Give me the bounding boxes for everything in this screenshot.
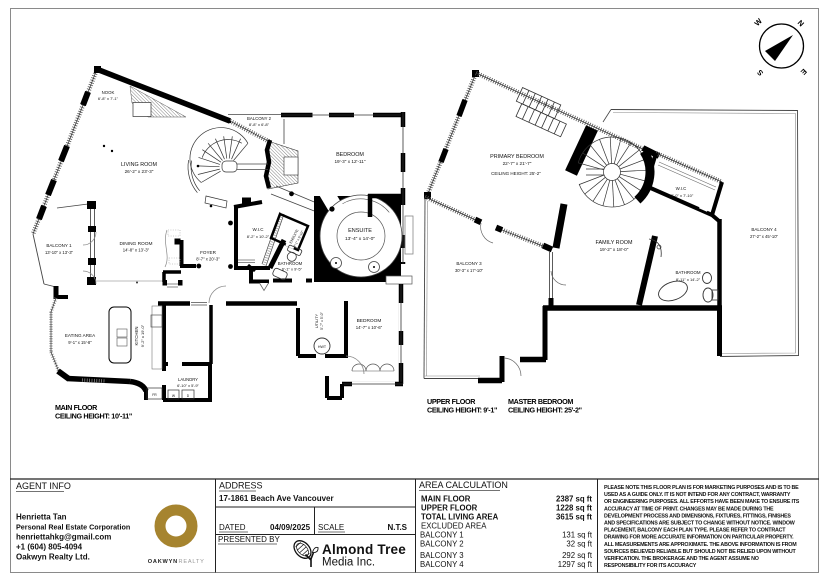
svg-text:3615 sq ft: 3615 sq ft [556, 513, 592, 522]
svg-text:2387 sq ft: 2387 sq ft [556, 495, 592, 504]
svg-text:BALCONY 3: BALCONY 3 [456, 261, 482, 266]
svg-text:UPPER FLOOR: UPPER FLOOR [421, 504, 478, 513]
svg-text:26'-2" x 23'-3": 26'-2" x 23'-3" [125, 169, 154, 174]
svg-text:VERIFICATION. THE BROKERAGE AN: VERIFICATION. THE BROKERAGE AND THE AGEN… [604, 556, 759, 562]
svg-text:EXCLUDED AREA: EXCLUDED AREA [421, 522, 487, 531]
svg-text:+1 (604) 805-4094: +1 (604) 805-4094 [16, 543, 83, 552]
svg-text:REALTY: REALTY [179, 559, 205, 565]
svg-text:DATED: DATED [219, 523, 246, 532]
svg-text:TOTAL LIVING AREA: TOTAL LIVING AREA [421, 513, 499, 522]
svg-text:9'-2" x 19'-0": 9'-2" x 19'-0" [140, 324, 145, 347]
svg-text:BALCONY 2: BALCONY 2 [247, 116, 272, 121]
svg-text:22'-7" x 21'-7": 22'-7" x 21'-7" [503, 161, 532, 166]
svg-text:DRAWING FOR MORE ACCURATE INFO: DRAWING FOR MORE ACCURATE INFORMATION ON… [604, 535, 794, 541]
svg-text:8'-8" x 6'-8": 8'-8" x 6'-8" [249, 122, 270, 127]
svg-text:19'-2" x 18'-0": 19'-2" x 18'-0" [600, 247, 629, 252]
svg-text:FR: FR [152, 393, 157, 397]
svg-text:henriettahkg@gmail.com: henriettahkg@gmail.com [16, 533, 111, 542]
svg-text:32 sq ft: 32 sq ft [566, 540, 592, 549]
svg-text:19'-3" x 12'-11": 19'-3" x 12'-11" [334, 159, 365, 164]
svg-text:27'-2" x 45'-10": 27'-2" x 45'-10" [750, 234, 779, 239]
svg-text:SOURCES BELIEVED RELIABLE BUT: SOURCES BELIEVED RELIABLE BUT SHOULD NOT… [604, 549, 797, 555]
svg-text:Media Inc.: Media Inc. [322, 557, 375, 569]
svg-text:DEVELOPMENT PROCESS AND DIMENS: DEVELOPMENT PROCESS AND DIMENSIONS, FIXT… [604, 513, 791, 519]
svg-text:Personal Real Estate Corporati: Personal Real Estate Corporation [16, 523, 130, 532]
svg-text:ENSUITE: ENSUITE [348, 228, 372, 234]
svg-text:131 sq ft: 131 sq ft [562, 531, 593, 540]
svg-text:6'-8" x 7'-1": 6'-8" x 7'-1" [98, 96, 119, 101]
svg-text:PLEASE NOTE THIS FLOOR PLAN IS: PLEASE NOTE THIS FLOOR PLAN IS FOR MARKE… [604, 485, 799, 491]
svg-text:BALCONY 3: BALCONY 3 [420, 551, 464, 560]
svg-text:6'-1" x 9'-5": 6'-1" x 9'-5" [282, 267, 303, 272]
svg-text:14'-7" x 10'-6": 14'-7" x 10'-6" [356, 325, 383, 330]
svg-text:HWT: HWT [318, 345, 327, 349]
svg-text:BALCONY 4: BALCONY 4 [420, 560, 464, 569]
svg-text:1228 sq ft: 1228 sq ft [556, 504, 592, 513]
svg-text:6'-10" x 5'-9": 6'-10" x 5'-9" [177, 383, 199, 388]
svg-text:BALCONY 2: BALCONY 2 [420, 540, 464, 549]
svg-text:AND SPECIFICATIONS ARE SUBJECT: AND SPECIFICATIONS ARE SUBJECT TO CHANGE… [604, 521, 796, 527]
svg-text:CEILING HEIGHT: 25'-2": CEILING HEIGHT: 25'-2" [508, 406, 582, 415]
svg-text:Almond Tree: Almond Tree [322, 542, 406, 557]
svg-text:292 sq ft: 292 sq ft [562, 551, 593, 560]
svg-text:13'-10" x 13'-3": 13'-10" x 13'-3" [45, 250, 74, 255]
svg-text:PRESENTED BY: PRESENTED BY [218, 535, 280, 544]
svg-text:PLACEMENT, BALCONY EACH PLAN T: PLACEMENT, BALCONY EACH PLAN TYPE. PLEAS… [604, 528, 786, 534]
svg-text:UTILITY: UTILITY [315, 313, 319, 328]
svg-text:AREA CALCULATION: AREA CALCULATION [419, 480, 508, 490]
svg-text:SCALE: SCALE [318, 523, 344, 532]
svg-text:30'-3" x 17'-10": 30'-3" x 17'-10" [455, 268, 484, 273]
svg-text:04/09/2025: 04/09/2025 [270, 523, 311, 532]
svg-text:W.I.C: W.I.C [676, 186, 687, 191]
svg-text:BEDROOM: BEDROOM [357, 318, 382, 324]
svg-text:13'-0" x 7'-10": 13'-0" x 7'-10" [669, 193, 694, 198]
svg-text:ADDRESS: ADDRESS [219, 481, 263, 491]
svg-text:14'-8" x 13'-3": 14'-8" x 13'-3" [123, 248, 150, 253]
svg-text:OAKWYN: OAKWYN [148, 559, 178, 565]
svg-text:FAMILY ROOM: FAMILY ROOM [596, 240, 633, 246]
svg-text:CEILING HEIGHT: 25'-2": CEILING HEIGHT: 25'-2" [491, 171, 541, 176]
svg-text:ALL MEASUREMENTS ARE APPROXIMA: ALL MEASUREMENTS ARE APPROXIMATE. THE AB… [604, 542, 797, 548]
svg-text:ACCURACY AT TIME OF PRINT. CHA: ACCURACY AT TIME OF PRINT. CHANGES MAY B… [604, 506, 774, 512]
svg-text:BALCONY 1: BALCONY 1 [420, 531, 464, 540]
svg-text:PRIMARY BEDROOM: PRIMARY BEDROOM [490, 154, 544, 160]
svg-text:1297 sq ft: 1297 sq ft [558, 560, 593, 569]
svg-text:5'-7" x 5'-0": 5'-7" x 5'-0" [320, 311, 324, 329]
svg-text:BALCONY 1: BALCONY 1 [46, 243, 72, 248]
svg-text:8'-11" x 14'-2": 8'-11" x 14'-2" [676, 277, 701, 282]
svg-text:NOOK: NOOK [102, 90, 115, 95]
svg-text:Oakwyn Realty Ltd.: Oakwyn Realty Ltd. [16, 553, 90, 562]
svg-text:Henrietta Tan: Henrietta Tan [16, 513, 67, 522]
svg-text:LIVING ROOM: LIVING ROOM [121, 162, 157, 168]
svg-text:BEDROOM: BEDROOM [336, 152, 364, 158]
svg-text:USED AS A GUIDE ONLY. IT IS NO: USED AS A GUIDE ONLY. IT IS NOT INTEND F… [604, 492, 791, 498]
svg-text:MAIN FLOOR: MAIN FLOOR [421, 495, 471, 504]
svg-text:RESPONSIBILITY FOR ITS ACCURAC: RESPONSIBILITY FOR ITS ACCURACY [604, 563, 697, 569]
svg-text:BATHROOM: BATHROOM [675, 270, 700, 275]
svg-text:DINING ROOM: DINING ROOM [119, 241, 152, 247]
svg-text:9'-1" x 15'-8": 9'-1" x 15'-8" [68, 340, 92, 345]
svg-text:EATING AREA: EATING AREA [65, 333, 96, 338]
svg-text:AGENT INFO: AGENT INFO [16, 481, 71, 491]
svg-text:8'-7" x 20'-3": 8'-7" x 20'-3" [196, 257, 220, 262]
svg-text:BATHROOM: BATHROOM [278, 261, 303, 266]
svg-text:OR ENGINEERING PURPOSES. ALL E: OR ENGINEERING PURPOSES. ALL EFFORTS HAV… [604, 499, 800, 505]
svg-text:13'-4" x 14'-0": 13'-4" x 14'-0" [345, 236, 375, 242]
svg-text:FOYER: FOYER [200, 250, 217, 255]
svg-text:17-1861 Beach Ave Vancouver: 17-1861 Beach Ave Vancouver [219, 494, 334, 503]
svg-text:KITCHEN: KITCHEN [134, 327, 139, 346]
svg-text:N.T.S: N.T.S [387, 523, 407, 532]
svg-text:8'-2" x 10'-2": 8'-2" x 10'-2" [247, 234, 270, 239]
svg-text:CEILING HEIGHT: 10'-11": CEILING HEIGHT: 10'-11" [55, 412, 132, 421]
svg-text:W.I.C: W.I.C [253, 227, 265, 232]
svg-text:BALCONY 4: BALCONY 4 [751, 227, 777, 232]
svg-text:CEILING HEIGHT: 9'-1": CEILING HEIGHT: 9'-1" [427, 406, 497, 415]
svg-text:LAUNDRY: LAUNDRY [178, 377, 198, 382]
